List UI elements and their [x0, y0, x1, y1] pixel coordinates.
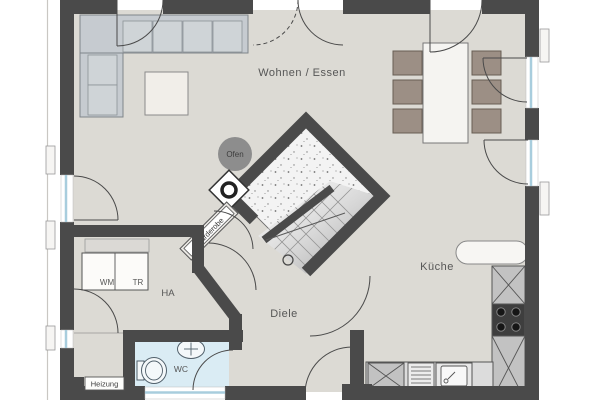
heating-label: Heizung [91, 380, 119, 389]
kitchen-sink [436, 363, 472, 389]
wc-label: WC [174, 364, 188, 374]
coffee-table [145, 72, 188, 115]
chimney-flue [222, 183, 236, 197]
dining-table [423, 43, 468, 143]
stove [492, 304, 525, 336]
living-dining-label: Wohnen / Essen [258, 67, 346, 79]
floor-plan-svg: Garderobe [0, 0, 600, 400]
utility-shelf [85, 239, 149, 252]
dishwasher [408, 363, 434, 389]
oven-label: Ofen [226, 150, 243, 159]
washing-machine-label: WM [100, 278, 115, 287]
toilet [137, 358, 167, 384]
hallway-label: Diele [270, 308, 298, 320]
dryer-label: TR [133, 278, 144, 287]
heating-label-box: Heizung [85, 377, 124, 390]
kitchen-island [456, 241, 528, 264]
house-connection-label: HA [161, 288, 175, 299]
sink [178, 340, 205, 359]
floor-plan: Garderobe [0, 0, 600, 400]
kitchen-label: Küche [420, 261, 454, 273]
